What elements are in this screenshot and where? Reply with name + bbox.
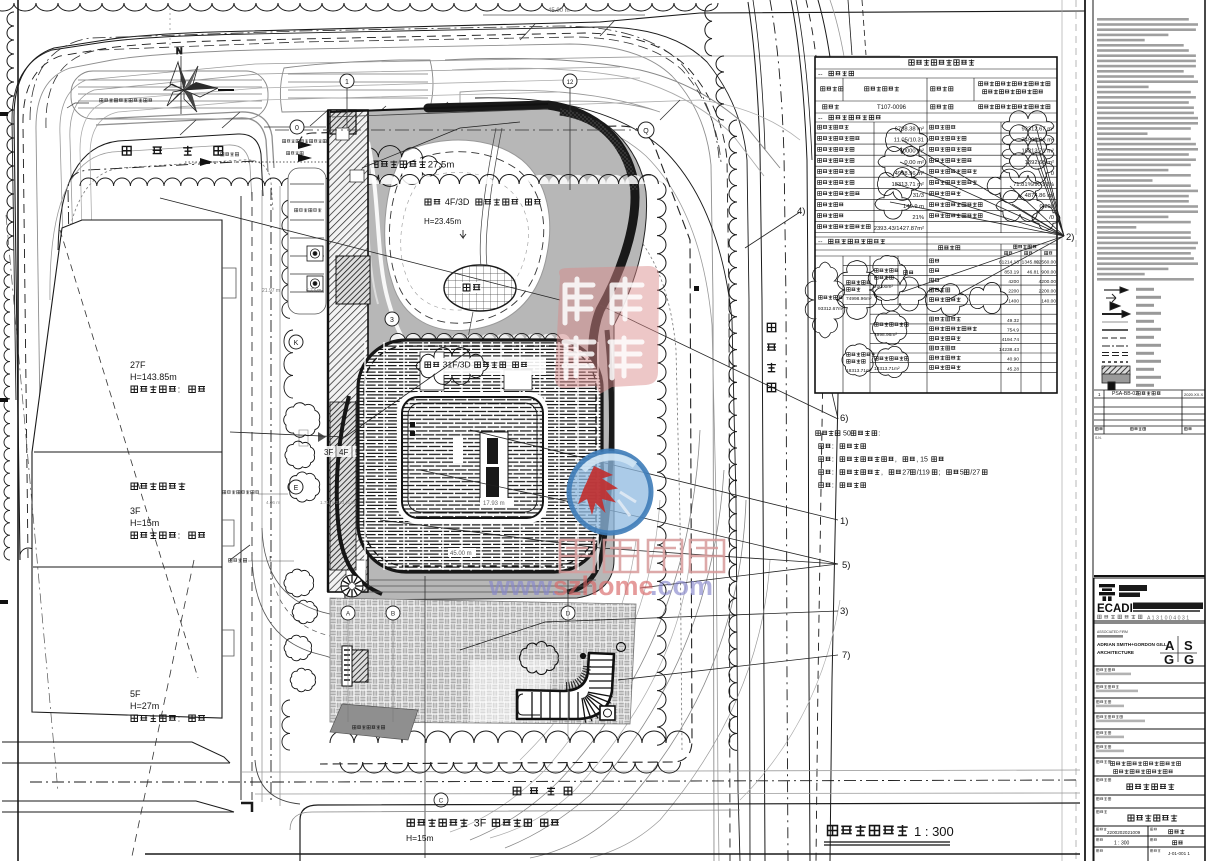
- svg-text:27: 27: [902, 470, 910, 477]
- svg-text:;: ;: [939, 470, 941, 477]
- svg-text:3: 3: [390, 317, 394, 324]
- svg-text:ADRIAN SMITH+GORDON GILL: ADRIAN SMITH+GORDON GILL: [1097, 642, 1167, 647]
- svg-text:4998.96 m²: 4998.96 m²: [895, 171, 924, 177]
- svg-text:27.5m: 27.5m: [428, 160, 455, 171]
- svg-text:45.28: 45.28: [1007, 366, 1019, 372]
- svg-text::: :: [178, 714, 181, 725]
- svg-text:4F/3D: 4F/3D: [445, 197, 470, 207]
- svg-text::: :: [178, 385, 181, 396]
- svg-text:szhome: szhome: [553, 571, 654, 601]
- svg-text:2020.XX.X: 2020.XX.X: [1184, 392, 1203, 397]
- svg-text:--: --: [818, 239, 822, 246]
- svg-text:6): 6): [840, 413, 848, 424]
- svg-text:4): 4): [797, 206, 805, 217]
- svg-text:H=15m: H=15m: [406, 833, 434, 843]
- svg-text:,: ,: [895, 457, 897, 464]
- svg-text:B: B: [391, 611, 395, 618]
- svg-text:853.19: 853.19: [1004, 269, 1019, 275]
- svg-text:1): 1): [840, 516, 848, 527]
- svg-text:11.05/10.31: 11.05/10.31: [894, 138, 924, 144]
- svg-text:1 : 300: 1 : 300: [1114, 841, 1130, 847]
- svg-text:/119: /119: [917, 470, 930, 477]
- svg-text:93312.67m²: 93312.67m²: [818, 306, 844, 312]
- svg-text:14238.43: 14238.43: [999, 347, 1019, 353]
- svg-text:S: S: [1184, 638, 1193, 653]
- svg-text:17.93 m: 17.93 m: [483, 501, 505, 507]
- svg-text:5): 5): [842, 560, 850, 571]
- svg-text:1: 1: [345, 79, 349, 86]
- svg-text:6.73 m: 6.73 m: [306, 288, 321, 294]
- svg-text:, 15: , 15: [916, 457, 928, 464]
- svg-text:H=143.85m: H=143.85m: [130, 372, 177, 382]
- svg-text:3F: 3F: [130, 506, 141, 516]
- svg-text:H=15m: H=15m: [130, 518, 159, 528]
- svg-text:4F: 4F: [339, 448, 348, 457]
- svg-text:74998.96m²: 74998.96m²: [846, 296, 872, 302]
- svg-text:49.32: 49.32: [1007, 318, 1019, 324]
- svg-text:H=23.45m: H=23.45m: [424, 217, 461, 226]
- svg-text:4194.74: 4194.74: [1002, 337, 1020, 343]
- svg-text:S.N.: S.N.: [1095, 436, 1102, 440]
- svg-text:4998.96m²: 4998.96m²: [874, 332, 897, 338]
- svg-text:45.00 m: 45.00 m: [548, 8, 570, 14]
- svg-text:--: --: [818, 71, 823, 78]
- svg-text::: :: [832, 444, 834, 451]
- svg-text:0: 0: [295, 125, 299, 132]
- svg-text:5: 5: [960, 470, 964, 477]
- svg-text:31/3: 31/3: [913, 193, 924, 199]
- svg-text:.com: .com: [650, 571, 713, 601]
- svg-text:4200: 4200: [1008, 279, 1019, 285]
- svg-text:2200202021009: 2200202021009: [1107, 830, 1141, 835]
- svg-text:C: C: [439, 798, 444, 805]
- svg-text:70000 m²: 70000 m²: [900, 149, 925, 155]
- svg-text:N: N: [176, 46, 183, 56]
- svg-text:1 : 300: 1 : 300: [914, 824, 954, 839]
- svg-text:40.90: 40.90: [1007, 357, 1019, 363]
- svg-text:21.97 m: 21.97 m: [262, 288, 280, 294]
- svg-text::: :: [832, 483, 834, 490]
- svg-text:A: A: [1165, 638, 1175, 653]
- svg-text:3F: 3F: [474, 817, 487, 829]
- svg-text:T107-0096: T107-0096: [877, 105, 907, 111]
- svg-text:1.71 m 2.93 (3.36 m: 1.71 m 2.93 (3.36 m: [320, 500, 361, 505]
- svg-text:754.9: 754.9: [1007, 328, 1019, 334]
- svg-text:50: 50: [843, 431, 851, 438]
- svg-text:G: G: [1184, 652, 1194, 667]
- svg-text:31F/3D: 31F/3D: [443, 360, 471, 370]
- svg-text:4.06 m: 4.06 m: [266, 500, 280, 505]
- svg-text:/0: /0: [1049, 215, 1054, 221]
- svg-text:G: G: [1164, 652, 1174, 667]
- svg-text:4200.00: 4200.00: [1039, 279, 1057, 285]
- svg-text:PSA-BB-02: PSA-BB-02: [1112, 391, 1138, 397]
- svg-text:2393.43/1427.87m²: 2393.43/1427.87m²: [874, 226, 924, 232]
- svg-text::: :: [878, 431, 880, 438]
- svg-text:62560.00: 62560.00: [1036, 260, 1056, 266]
- svg-text::: :: [832, 457, 834, 464]
- svg-text:A 1 3 1 0 0 4 0 3 1: A 1 3 1 0 0 4 0 3 1: [1147, 616, 1189, 622]
- svg-text:ECADI: ECADI: [1097, 603, 1133, 615]
- svg-text:www.: www.: [488, 571, 559, 601]
- svg-text::: :: [832, 470, 834, 477]
- svg-text:E: E: [294, 485, 299, 492]
- svg-text:/27: /27: [970, 470, 980, 477]
- svg-text:J-01-001 1: J-01-001 1: [1168, 851, 1190, 856]
- svg-text:Q: Q: [643, 128, 649, 135]
- svg-text:27F: 27F: [130, 360, 146, 370]
- svg-text:21%: 21%: [912, 215, 924, 221]
- svg-text:12: 12: [567, 80, 574, 86]
- svg-text:7): 7): [842, 650, 850, 661]
- svg-text:--: --: [818, 115, 823, 122]
- svg-text::: :: [178, 531, 181, 542]
- svg-text:140.00: 140.00: [1041, 298, 1056, 304]
- svg-text:5F: 5F: [130, 689, 141, 699]
- svg-text:1400: 1400: [1008, 298, 1019, 304]
- svg-text:A: A: [346, 611, 351, 618]
- svg-text:ARCHITECTURE: ARCHITECTURE: [1097, 650, 1134, 655]
- svg-text:3): 3): [840, 606, 848, 617]
- svg-text:K: K: [294, 340, 299, 347]
- svg-text:2200: 2200: [1008, 289, 1019, 295]
- svg-text:2): 2): [1066, 232, 1074, 243]
- svg-text:2200.00: 2200.00: [1039, 289, 1057, 295]
- svg-text:46.81: 46.81: [1027, 269, 1039, 275]
- svg-text:900.00: 900.00: [1041, 269, 1056, 275]
- svg-text:,: ,: [881, 470, 883, 477]
- svg-text:45.00 m: 45.00 m: [450, 551, 472, 557]
- svg-text:H=27m: H=27m: [130, 701, 159, 711]
- svg-text:ASSOCIATED FIRM: ASSOCIATED FIRM: [1097, 630, 1128, 634]
- svg-text:3F: 3F: [324, 448, 333, 457]
